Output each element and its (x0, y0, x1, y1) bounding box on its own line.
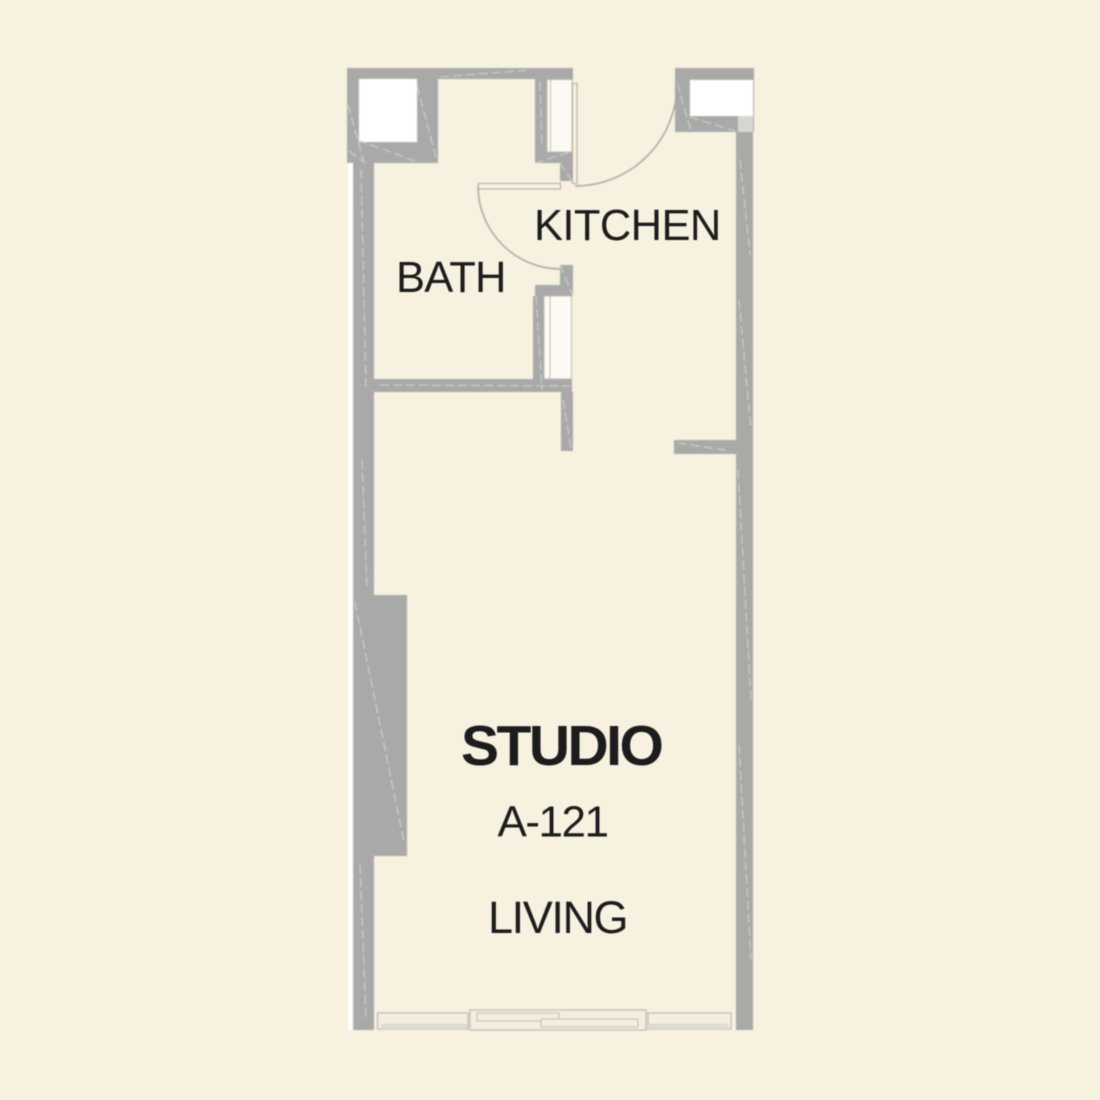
svg-text:A-121: A-121 (498, 798, 608, 847)
svg-text:LIVING: LIVING (488, 892, 627, 943)
svg-text:KITCHEN: KITCHEN (534, 202, 721, 250)
svg-text:BATH: BATH (396, 254, 506, 302)
svg-text:STUDIO: STUDIO (461, 714, 662, 778)
